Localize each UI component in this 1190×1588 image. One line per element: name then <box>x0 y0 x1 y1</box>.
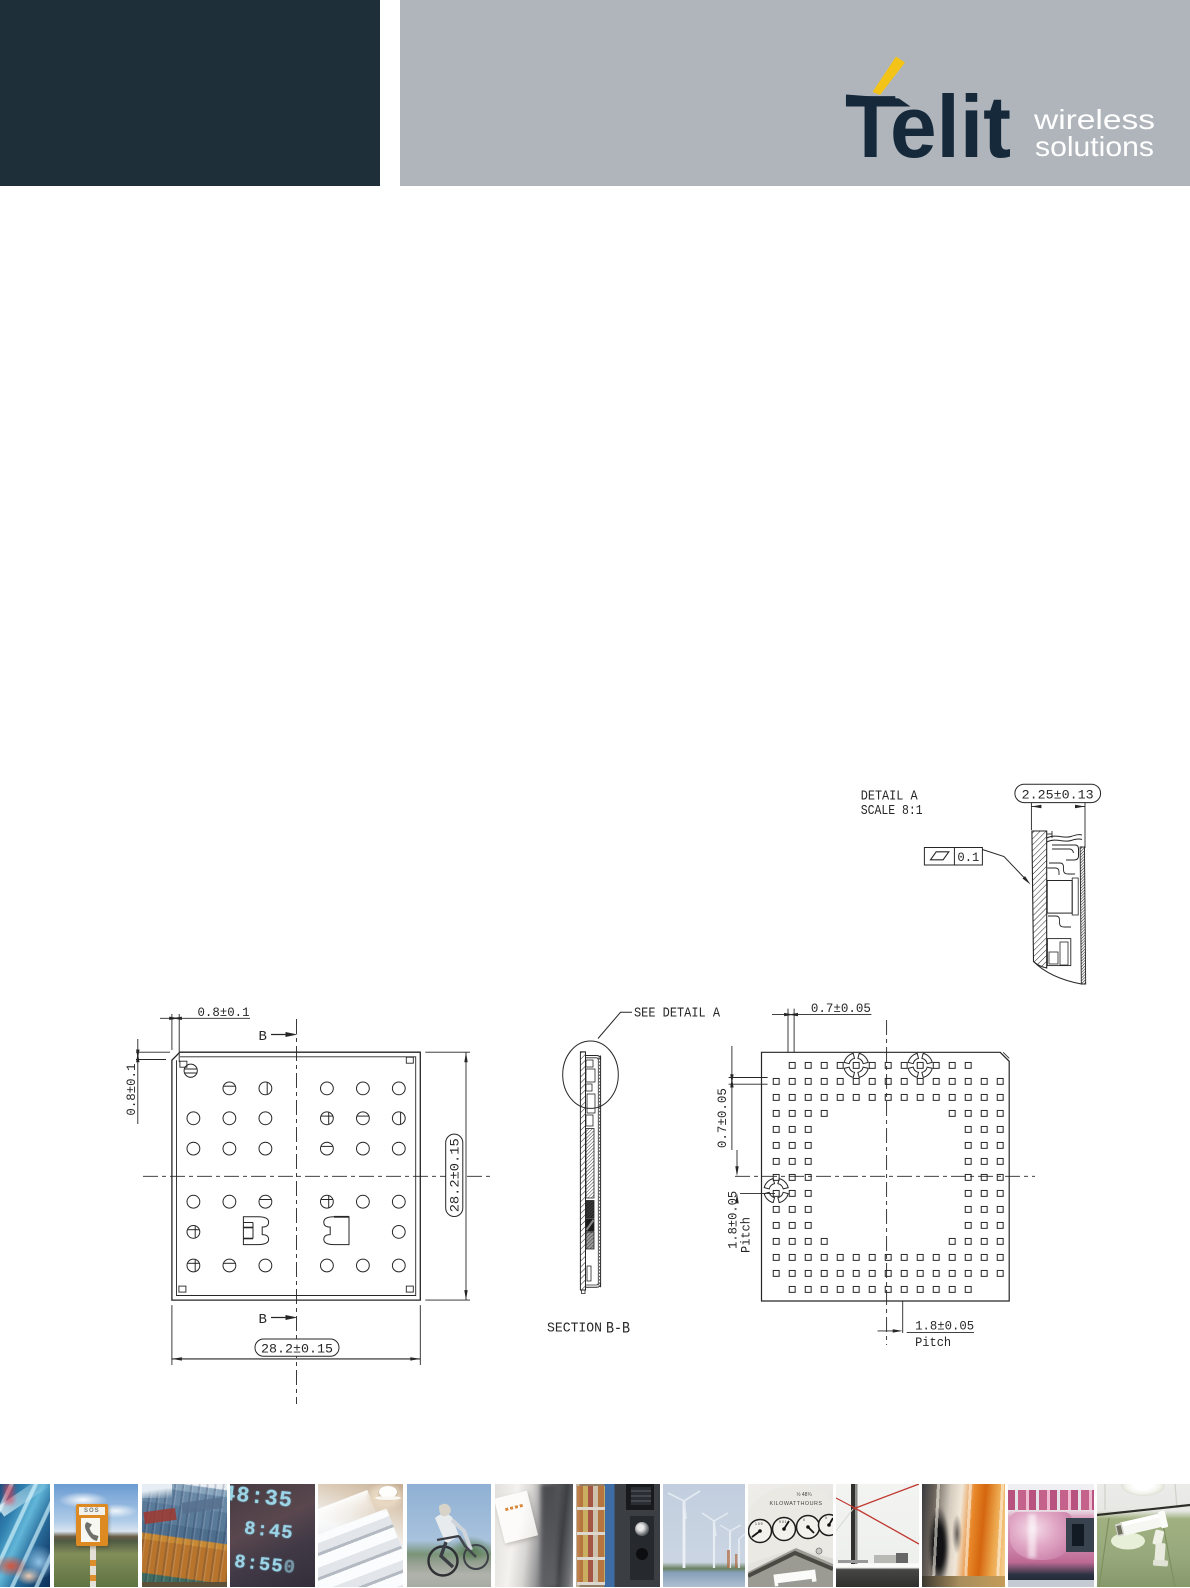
svg-text:9 0 1: 9 0 1 <box>779 1520 787 1524</box>
svg-text:B: B <box>259 1312 267 1328</box>
svg-text:0: 0 <box>803 1518 805 1522</box>
svg-text:SCALE 8:1: SCALE 8:1 <box>861 803 923 819</box>
svg-text:KILOWATTHOURS: KILOWATTHOURS <box>770 1501 823 1507</box>
svg-text:SEE DETAIL A: SEE DETAIL A <box>634 1007 721 1022</box>
svg-text:B: B <box>259 1029 267 1045</box>
svg-text:28.2±0.15: 28.2±0.15 <box>448 1138 462 1212</box>
svg-text:½ 48¾: ½ 48¾ <box>797 1491 813 1498</box>
svg-text:28.2±0.15: 28.2±0.15 <box>261 1342 333 1356</box>
svg-text:1 0 9: 1 0 9 <box>755 1522 763 1526</box>
svg-text:0: 0 <box>825 1516 827 1520</box>
svg-text:B-B: B-B <box>606 1320 630 1338</box>
svg-text:SECTION: SECTION <box>547 1322 602 1337</box>
svg-text:Pitch: Pitch <box>740 1217 754 1253</box>
svg-text:DETAIL A: DETAIL A <box>861 789 919 805</box>
svg-text:1.8±0.05: 1.8±0.05 <box>915 1320 974 1334</box>
svg-text:0.7±0.05: 0.7±0.05 <box>716 1088 730 1148</box>
svg-text:0.8±0.1: 0.8±0.1 <box>198 1006 250 1020</box>
svg-text:0.8±0.1: 0.8±0.1 <box>125 1064 139 1116</box>
svg-text:2.25±0.13: 2.25±0.13 <box>1022 787 1094 802</box>
svg-text:1.8±0.05: 1.8±0.05 <box>727 1191 741 1249</box>
svg-text:0.1: 0.1 <box>957 850 979 865</box>
svg-text:Pitch: Pitch <box>915 1336 951 1350</box>
svg-text:0.7±0.05: 0.7±0.05 <box>811 1002 871 1016</box>
